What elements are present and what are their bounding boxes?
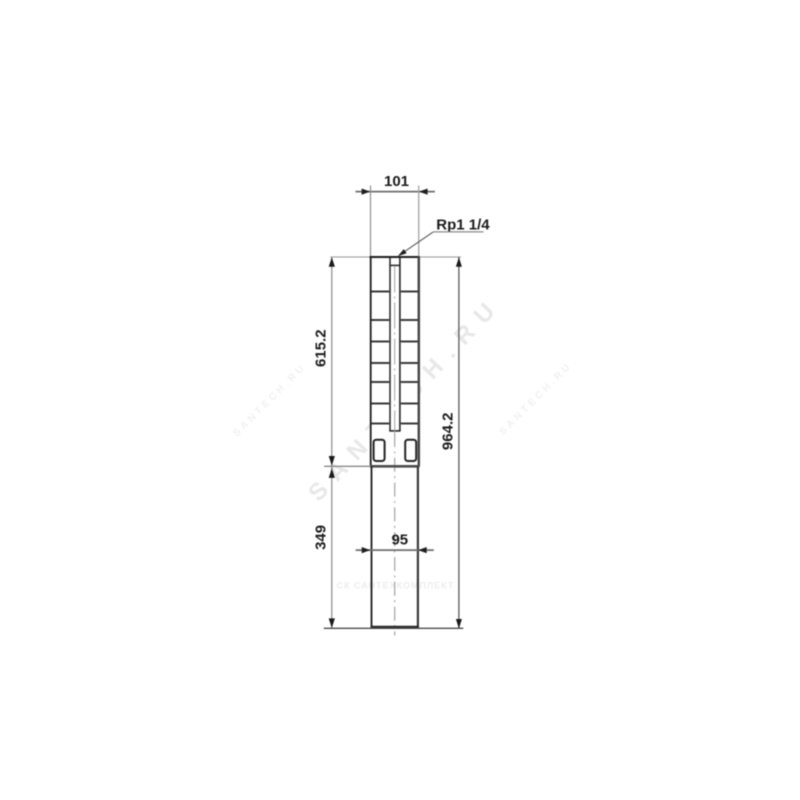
svg-text:964.2: 964.2 <box>439 413 456 451</box>
svg-text:СК САНТЕХКОМПЛЕКТ: СК САНТЕХКОМПЛЕКТ <box>336 580 454 590</box>
svg-text:Rp1 1/4: Rp1 1/4 <box>436 216 490 233</box>
svg-text:95: 95 <box>391 532 408 549</box>
svg-text:349: 349 <box>313 525 330 550</box>
svg-text:615.2: 615.2 <box>312 329 329 367</box>
svg-text:101: 101 <box>384 173 409 190</box>
